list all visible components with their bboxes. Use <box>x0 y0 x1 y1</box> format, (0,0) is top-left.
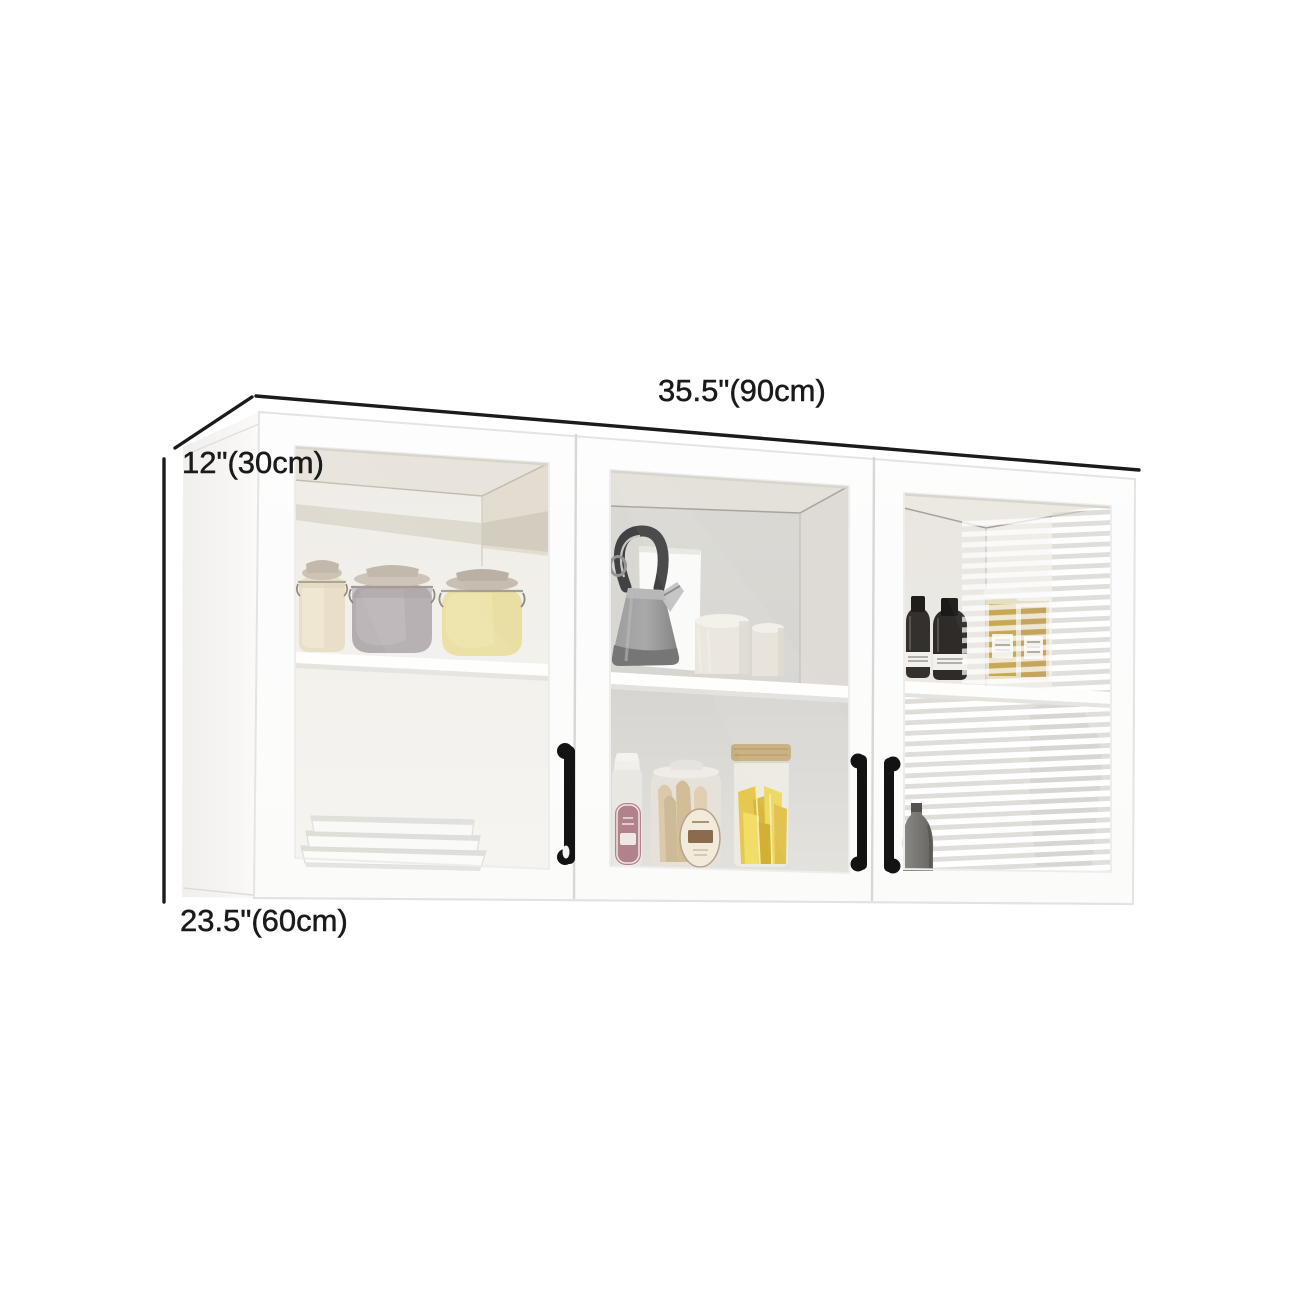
svg-text:12"(30cm): 12"(30cm) <box>182 445 324 480</box>
svg-text:23.5"(60cm): 23.5"(60cm) <box>180 903 348 938</box>
svg-text:35.5"(90cm): 35.5"(90cm) <box>658 373 826 408</box>
